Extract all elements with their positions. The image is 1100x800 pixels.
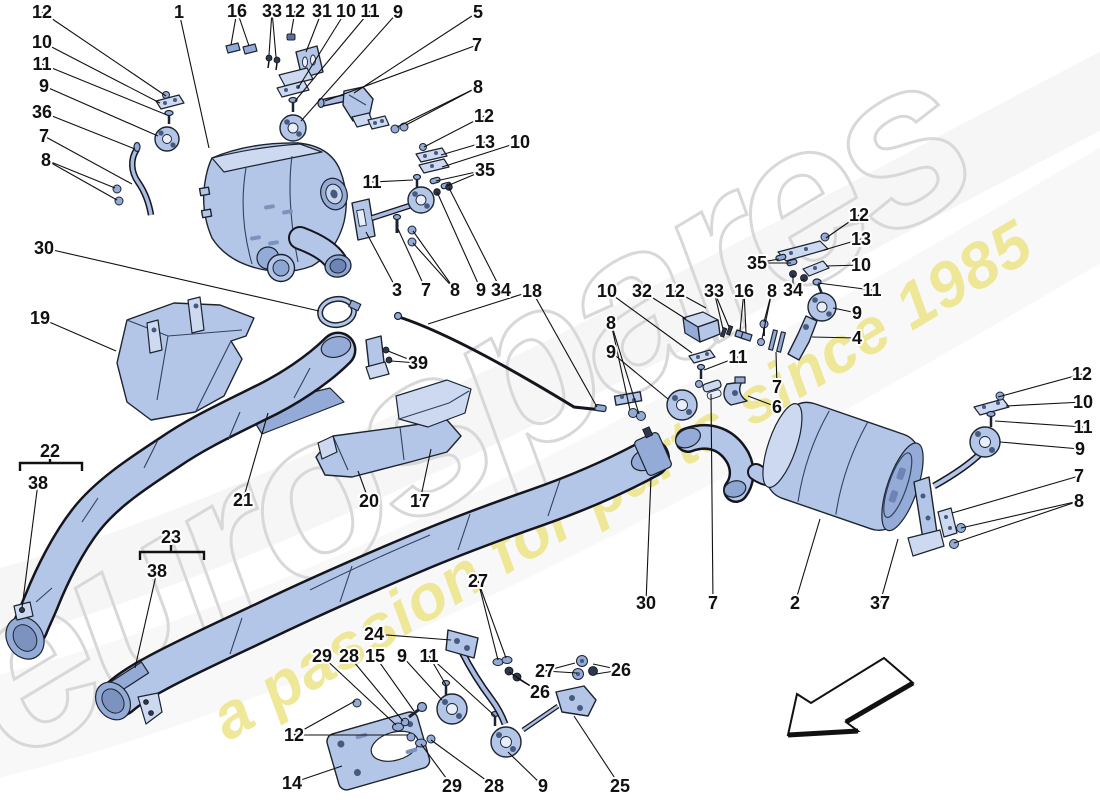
part-number-label-39: 39 xyxy=(408,353,428,373)
part-number-label-20: 20 xyxy=(359,491,379,511)
part-number-label-12: 12 xyxy=(285,1,305,21)
leader-line xyxy=(406,87,478,125)
part-number-label-12: 12 xyxy=(1072,364,1092,384)
part-number-label-8: 8 xyxy=(606,313,616,333)
part-number-label-11: 11 xyxy=(419,646,438,666)
leader-line xyxy=(42,112,135,149)
part-number-label-36: 36 xyxy=(32,102,52,122)
part-number-label-9: 9 xyxy=(1075,439,1085,459)
part-number-label-9: 9 xyxy=(538,776,548,796)
parts-diagram-page: eurospares a passion for parts since 198… xyxy=(0,0,1100,800)
leader-line xyxy=(795,519,820,603)
part-number-label-16: 16 xyxy=(227,1,247,21)
part-number-label-13: 13 xyxy=(851,229,871,249)
part-number-label-10: 10 xyxy=(510,132,530,152)
part-number-label-27: 27 xyxy=(468,571,488,591)
part-number-label-32: 32 xyxy=(632,281,652,301)
leader-line xyxy=(1000,442,1080,449)
part-number-label-2: 2 xyxy=(790,593,800,613)
part-number-label-12: 12 xyxy=(849,205,869,225)
part-number-label-11: 11 xyxy=(32,54,51,74)
part-number-label-9: 9 xyxy=(476,280,486,300)
part-number-label-21: 21 xyxy=(233,490,253,510)
part-number-label-29: 29 xyxy=(442,776,462,796)
bracket-25 xyxy=(556,686,596,716)
part-number-label-10: 10 xyxy=(336,1,356,21)
leader-line xyxy=(40,318,116,351)
part-number-label-12: 12 xyxy=(284,725,304,745)
part-number-label-37: 37 xyxy=(870,593,890,613)
part-number-label-3: 3 xyxy=(392,280,402,300)
leader-line xyxy=(998,374,1082,397)
part-number-label-9: 9 xyxy=(39,76,49,96)
part-number-label-8: 8 xyxy=(450,280,460,300)
part-number-label-11: 11 xyxy=(728,347,747,367)
part-number-label-9: 9 xyxy=(397,646,407,666)
part-number-label-11: 11 xyxy=(862,280,881,300)
part-number-label-35: 35 xyxy=(747,253,767,273)
part-number-label-10: 10 xyxy=(597,281,617,301)
part-number-label-23: 23 xyxy=(161,527,181,547)
part-number-label-24: 24 xyxy=(364,624,384,644)
part-number-label-11: 11 xyxy=(1073,417,1092,437)
part-number-label-26: 26 xyxy=(530,682,550,702)
part-number-label-31: 31 xyxy=(312,1,332,21)
part-number-label-14: 14 xyxy=(282,773,302,793)
exhaust-diagram: eurospares a passion for parts since 198… xyxy=(0,0,1100,800)
part-number-label-13: 13 xyxy=(475,132,495,152)
leader-line xyxy=(325,45,477,101)
part-number-label-38: 38 xyxy=(28,473,48,493)
part-number-label-28: 28 xyxy=(339,646,359,666)
part-number-label-33: 33 xyxy=(262,1,282,21)
top-mount-hardware xyxy=(226,34,408,141)
part-number-label-7: 7 xyxy=(39,126,49,146)
part-number-label-1: 1 xyxy=(174,2,184,22)
part-number-label-11: 11 xyxy=(362,172,381,192)
leader-line xyxy=(42,12,166,96)
leader-line xyxy=(46,160,117,200)
leader-line xyxy=(42,42,160,103)
leader-line xyxy=(42,64,167,115)
part-number-label-30: 30 xyxy=(34,238,54,258)
part-number-label-12: 12 xyxy=(474,106,494,126)
part-number-label-10: 10 xyxy=(32,32,52,52)
left-mount-hardware xyxy=(113,92,184,216)
part-number-label-8: 8 xyxy=(473,77,483,97)
part-number-label-7: 7 xyxy=(421,280,431,300)
part-number-label-28: 28 xyxy=(484,776,504,796)
part-number-label-38: 38 xyxy=(147,561,167,581)
part-number-label-12: 12 xyxy=(665,281,685,301)
part-number-label-35: 35 xyxy=(475,160,495,180)
part-number-label-10: 10 xyxy=(1073,392,1093,412)
silencer-1 xyxy=(200,143,353,282)
part-number-label-16: 16 xyxy=(734,281,754,301)
part-number-label-8: 8 xyxy=(41,150,51,170)
part-number-label-30: 30 xyxy=(636,593,656,613)
part-number-label-27: 27 xyxy=(535,661,555,681)
part-number-label-7: 7 xyxy=(1074,466,1084,486)
direction-arrow-icon xyxy=(788,658,913,735)
part-number-label-15: 15 xyxy=(365,646,385,666)
rear-lower-mount-hardware xyxy=(908,392,1009,556)
part-number-label-6: 6 xyxy=(772,397,782,417)
part-number-label-17: 17 xyxy=(410,491,430,511)
part-number-label-9: 9 xyxy=(852,303,862,323)
leader-line xyxy=(354,12,478,93)
part-number-label-26: 26 xyxy=(611,660,631,680)
part-number-label-33: 33 xyxy=(704,281,724,301)
part-number-label-18: 18 xyxy=(522,281,542,301)
part-number-label-8: 8 xyxy=(1074,491,1084,511)
part-number-label-8: 8 xyxy=(767,281,777,301)
part-number-label-34: 34 xyxy=(783,280,803,300)
leader-line xyxy=(46,160,115,188)
leader-line xyxy=(995,421,1083,427)
mid-mount-hardware xyxy=(352,144,452,247)
part-number-label-22: 22 xyxy=(40,441,60,461)
part-number-label-34: 34 xyxy=(491,280,511,300)
part-number-label-25: 25 xyxy=(610,776,630,796)
part-number-label-7: 7 xyxy=(708,593,718,613)
part-number-label-12: 12 xyxy=(32,2,52,22)
part-number-label-7: 7 xyxy=(472,35,482,55)
part-number-label-10: 10 xyxy=(851,255,871,275)
part-number-label-9: 9 xyxy=(393,2,403,22)
part-number-label-9: 9 xyxy=(606,342,616,362)
part-number-label-29: 29 xyxy=(312,646,332,666)
part-number-label-7: 7 xyxy=(772,377,782,397)
part-number-label-5: 5 xyxy=(473,2,483,22)
part-number-label-4: 4 xyxy=(852,328,862,348)
part-number-label-19: 19 xyxy=(30,308,50,328)
leader-line xyxy=(1006,402,1083,406)
leader-line xyxy=(179,12,209,148)
part-number-label-11: 11 xyxy=(360,1,379,21)
